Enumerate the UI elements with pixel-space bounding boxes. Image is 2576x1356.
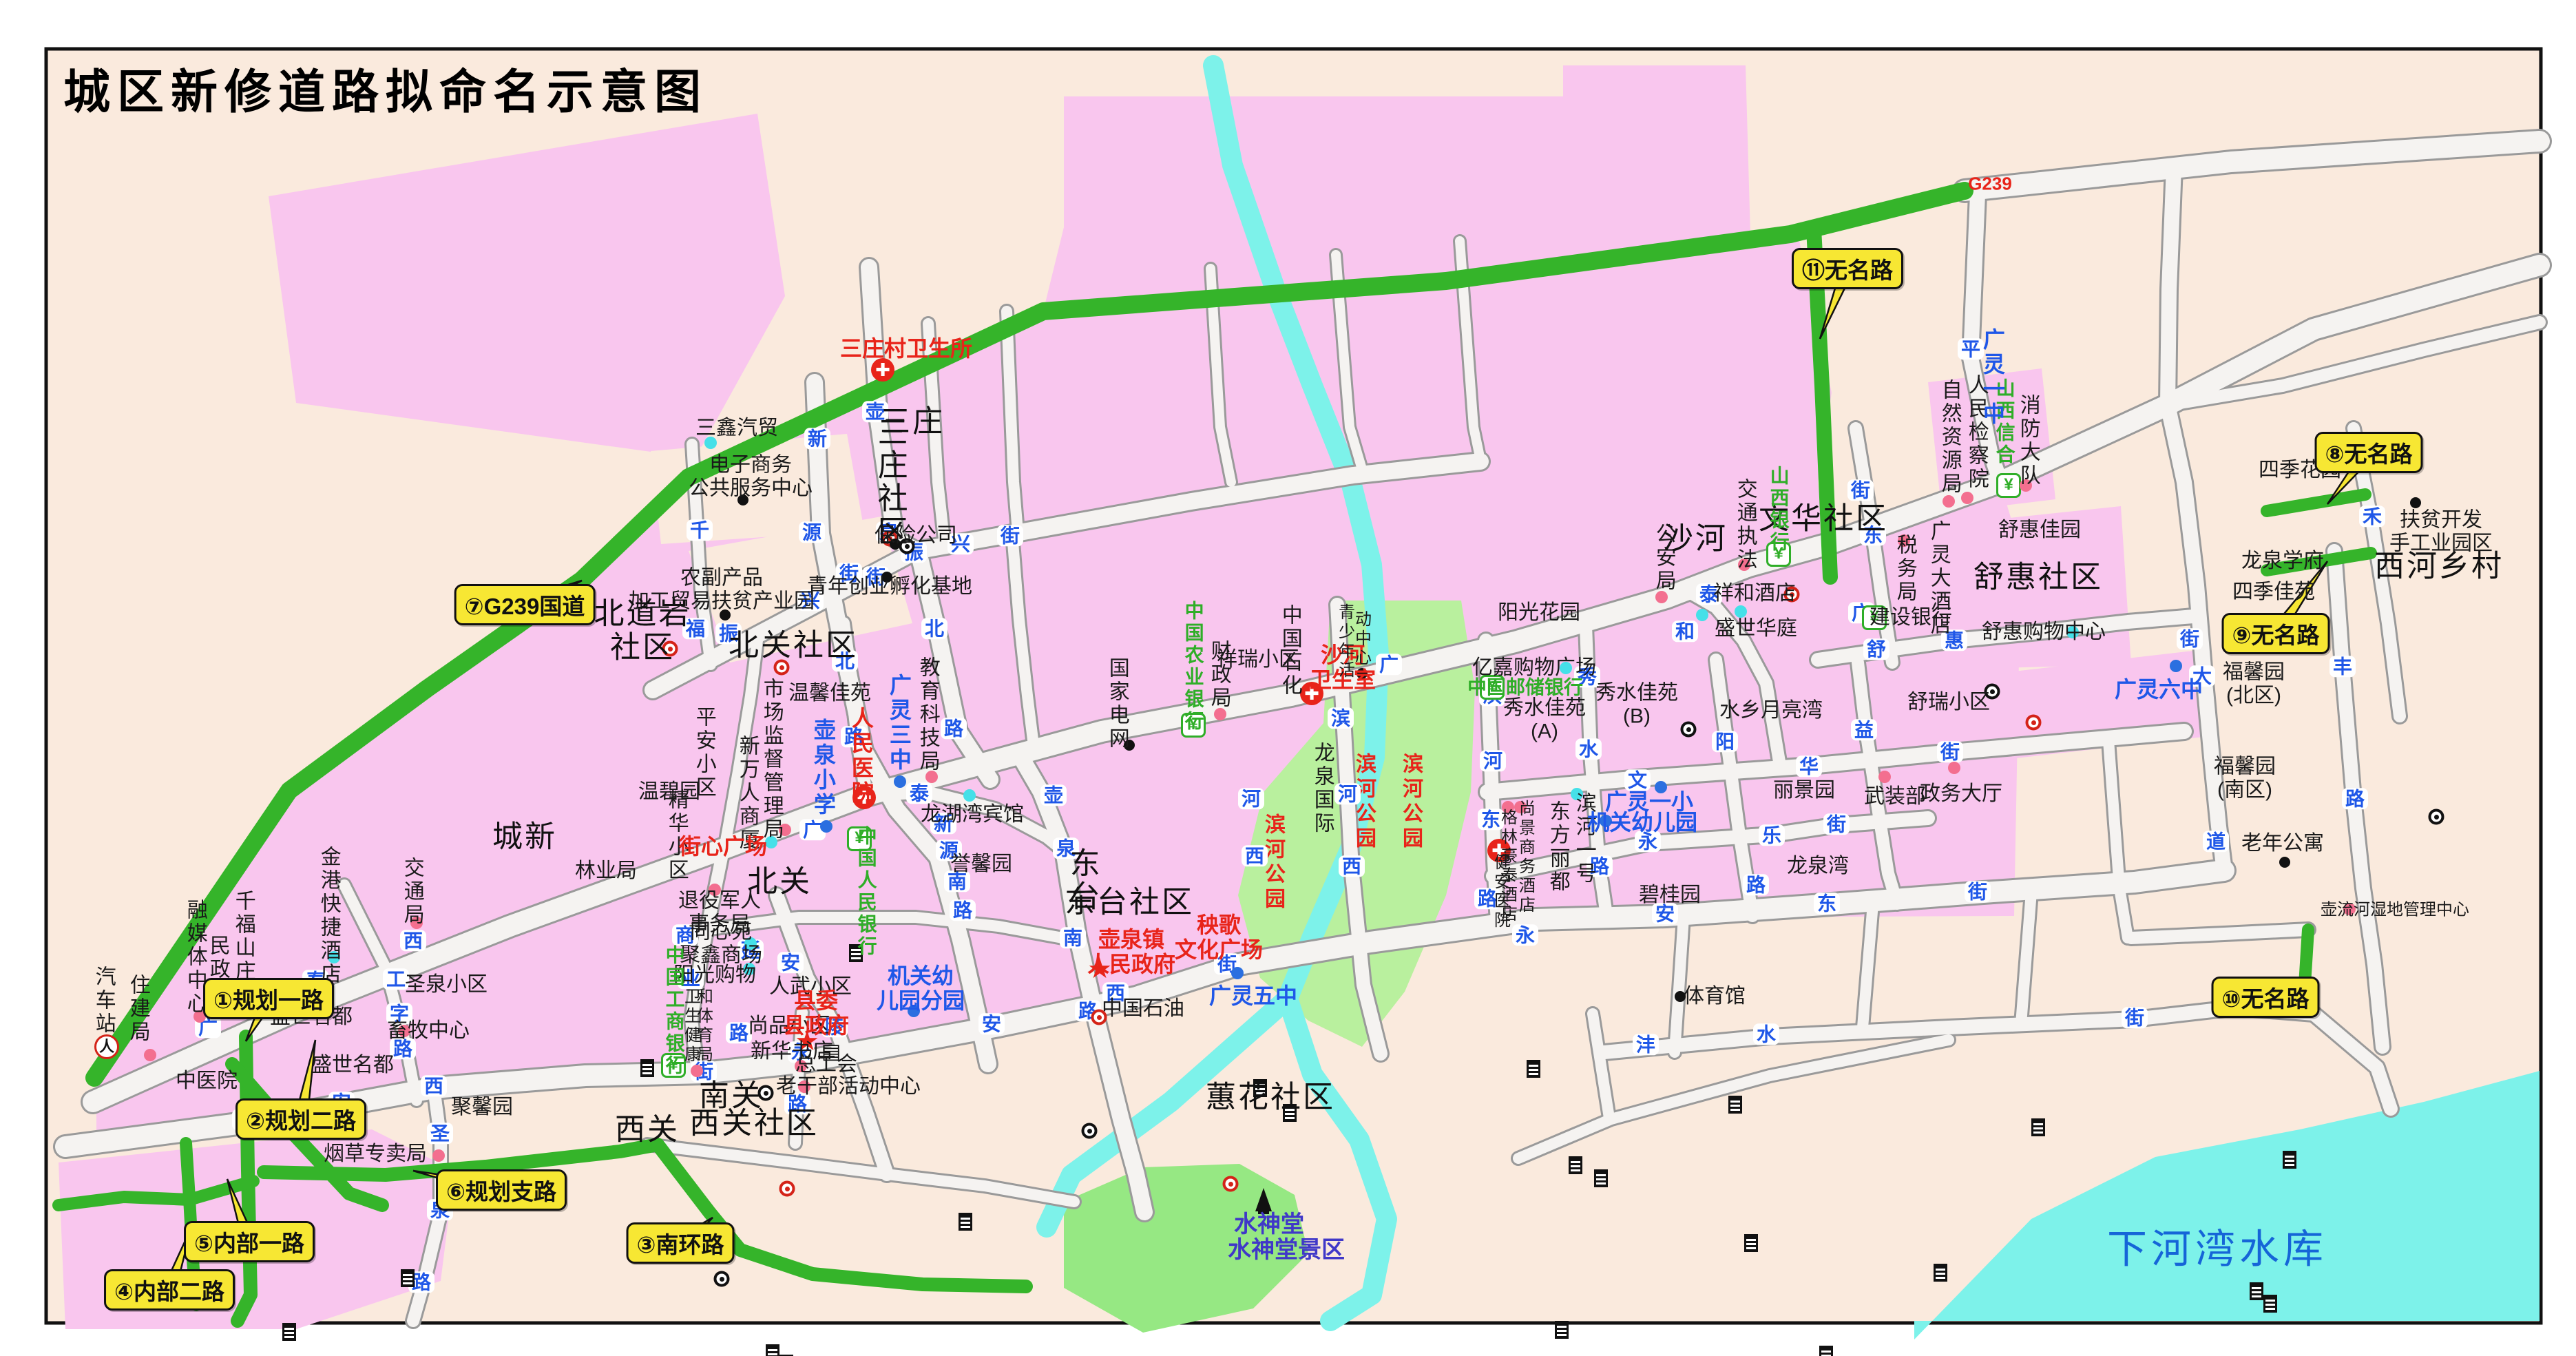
pink-icon bbox=[1878, 771, 1891, 783]
road-badge: ①规划一路 bbox=[203, 978, 334, 1019]
bldg-icon bbox=[282, 1323, 296, 1341]
road-name-capsule: 街 bbox=[2122, 1007, 2148, 1028]
cross-icon bbox=[852, 786, 876, 809]
road-name-capsule: 路 bbox=[841, 726, 867, 747]
road-name-capsule: 壶 bbox=[1040, 784, 1067, 806]
road-badge: ⑩无名路 bbox=[2212, 977, 2320, 1018]
pink-icon bbox=[1898, 534, 1910, 547]
ring-red-icon bbox=[2026, 715, 2042, 731]
ring-blk-icon bbox=[1082, 1123, 1098, 1139]
road-name-capsule: 兴 bbox=[947, 533, 974, 554]
ring-blk-icon bbox=[1681, 722, 1697, 738]
cyan-icon bbox=[765, 836, 777, 848]
road-name-capsule: 壶 bbox=[862, 401, 888, 422]
black-icon bbox=[1675, 991, 1686, 1002]
road-name-capsule: 水 bbox=[1575, 738, 1602, 760]
bank-icon bbox=[1862, 605, 1887, 630]
cyan-icon bbox=[704, 437, 717, 449]
road-name-capsule: 南 bbox=[944, 870, 970, 892]
pink-icon bbox=[2020, 479, 2032, 492]
black-icon bbox=[2410, 497, 2421, 508]
cyan-icon bbox=[963, 789, 976, 802]
pink-icon bbox=[709, 884, 721, 896]
road-name-capsule: 东 bbox=[1478, 809, 1504, 830]
road-name-capsule: 禾 bbox=[2359, 505, 2385, 527]
road-badge: ②规划二路 bbox=[235, 1098, 366, 1140]
bldg-icon bbox=[1555, 1321, 1569, 1339]
road-badge: ⑨无名路 bbox=[2222, 613, 2330, 654]
pink-icon bbox=[432, 1149, 445, 1162]
ring-red-icon bbox=[774, 660, 790, 676]
bus-icon bbox=[94, 1034, 119, 1059]
pink-icon bbox=[398, 1025, 410, 1037]
ring-blk-icon bbox=[899, 539, 915, 554]
road-name-capsule: 广 bbox=[1376, 654, 1402, 675]
road-name-capsule: 路 bbox=[941, 718, 967, 739]
road-name-capsule: 北 bbox=[921, 618, 947, 639]
road-name-capsule: 西 bbox=[1339, 855, 1365, 877]
road-name-capsule: 路 bbox=[950, 899, 976, 921]
pink-icon bbox=[1738, 559, 1750, 571]
road-name-capsule: 永 bbox=[1635, 831, 1661, 852]
black-icon bbox=[2279, 857, 2290, 868]
road-badge: ⑦G239国道 bbox=[454, 584, 596, 625]
road-name-capsule: 陵 bbox=[821, 1016, 848, 1037]
road-name-capsule: 泉 bbox=[1053, 837, 1079, 859]
road-name-capsule: 圣 bbox=[427, 1123, 453, 1144]
road-name-capsule: 河 bbox=[1334, 783, 1361, 804]
road-name-capsule: 泰 bbox=[1696, 583, 1722, 605]
cross-icon bbox=[871, 358, 894, 382]
road-name-capsule: 秀 bbox=[1574, 666, 1600, 687]
pink-icon bbox=[1961, 492, 1973, 504]
ring-red-icon bbox=[1091, 1010, 1107, 1025]
bank-icon bbox=[1181, 713, 1206, 738]
bldg-icon bbox=[2263, 1295, 2277, 1313]
cyan-icon bbox=[744, 937, 757, 950]
blue-icon bbox=[894, 775, 906, 788]
book-icon bbox=[821, 1040, 841, 1064]
pink-icon bbox=[691, 1065, 703, 1077]
road-name-capsule: 街 bbox=[1965, 881, 1991, 902]
star-icon bbox=[1087, 959, 1112, 979]
bank-icon bbox=[1480, 675, 1505, 700]
bldg-icon bbox=[1283, 1104, 1297, 1122]
ring-blk-icon bbox=[1985, 684, 2000, 700]
road-name-capsule: 路 bbox=[784, 1093, 810, 1114]
road-name-capsule: 街 bbox=[1847, 479, 1874, 501]
road-badge: ④内部二路 bbox=[104, 1269, 235, 1311]
blue-icon bbox=[1600, 815, 1612, 827]
cyan-icon bbox=[2066, 626, 2079, 638]
blue-icon bbox=[1231, 967, 1244, 979]
pink-icon bbox=[1948, 762, 1960, 774]
bldg-icon bbox=[1728, 1096, 1742, 1114]
bldg-icon bbox=[1744, 1234, 1758, 1252]
black-icon bbox=[737, 494, 748, 505]
road-name-capsule: 西 bbox=[1102, 982, 1129, 1003]
cyan-icon bbox=[1735, 605, 1747, 618]
road-name-capsule: 大 bbox=[2189, 665, 2215, 687]
road-name-capsule: 河 bbox=[1238, 788, 1264, 809]
road-name-capsule: 惠 bbox=[1941, 629, 1967, 651]
bldg-icon bbox=[2283, 1151, 2296, 1169]
road-name-capsule: 文 bbox=[1624, 769, 1651, 791]
road-name-capsule: 新 bbox=[804, 428, 830, 449]
pink-icon bbox=[144, 1049, 156, 1061]
pink-icon bbox=[925, 771, 938, 783]
black-icon bbox=[890, 539, 901, 550]
pink-icon bbox=[2343, 903, 2356, 915]
bldg-icon bbox=[959, 1213, 972, 1231]
road-name-capsule: 东 bbox=[1860, 524, 1886, 545]
road-name-capsule: 舒 bbox=[1863, 638, 1889, 660]
bldg-icon bbox=[1594, 1169, 1608, 1187]
bldg-icon bbox=[2031, 1118, 2045, 1136]
pink-icon bbox=[1502, 801, 1514, 813]
bank-icon bbox=[1766, 542, 1791, 567]
ring-red-icon bbox=[1784, 587, 1800, 603]
ring-blk-icon bbox=[714, 1271, 730, 1287]
cross-icon bbox=[1300, 682, 1323, 705]
bank-icon bbox=[661, 1053, 686, 1078]
road-name-capsule: 丰 bbox=[2329, 656, 2356, 677]
ring-red-icon bbox=[1223, 1176, 1239, 1192]
road-name-capsule: 平 bbox=[1958, 338, 1984, 359]
blue-icon bbox=[2170, 660, 2182, 672]
bldg-icon bbox=[1253, 1079, 1267, 1097]
road-name-capsule: 滨 bbox=[1328, 707, 1354, 729]
road-name-capsule: 商 bbox=[672, 924, 698, 946]
bldg-icon bbox=[766, 1344, 779, 1356]
road-name-capsule: 街 bbox=[836, 563, 862, 584]
ring-red-icon bbox=[662, 641, 678, 657]
road-name-capsule: 泰 bbox=[906, 782, 932, 804]
road-name-capsule: 益 bbox=[1851, 719, 1877, 740]
road-name-capsule: 源 bbox=[936, 839, 962, 861]
blue-icon bbox=[1655, 781, 1667, 793]
road-name-capsule: 街 bbox=[1823, 813, 1850, 835]
road-name-capsule: 兴 bbox=[797, 590, 824, 611]
black-icon bbox=[1357, 668, 1368, 679]
road-name-capsule: 西 bbox=[400, 930, 426, 951]
pink-icon bbox=[779, 824, 791, 836]
map-root: 城区新修道路拟命名示意图 G239三庄村卫生所三庄三庄社区三鑫汽贸电子商务 公共… bbox=[0, 0, 2576, 1356]
cyan-icon bbox=[1571, 788, 1583, 800]
black-icon bbox=[881, 572, 892, 583]
bank-icon bbox=[1996, 473, 2021, 498]
map-label: 滨河公园 bbox=[1395, 753, 1425, 852]
road-name-capsule: 路 bbox=[2342, 788, 2368, 809]
road-name-capsule: 新 bbox=[930, 813, 956, 834]
road-name-capsule: 沣 bbox=[1633, 1034, 1659, 1055]
map-screenshot: 城区新修道路拟命名示意图 G239三庄村卫生所三庄三庄社区三鑫汽贸电子商务 公共… bbox=[0, 0, 2576, 1356]
cyan-icon bbox=[328, 951, 340, 963]
pink-icon bbox=[798, 1081, 810, 1093]
pink-icon bbox=[1655, 591, 1668, 603]
road-name-capsule: 路 bbox=[1743, 874, 1769, 895]
road-name-capsule: 业 bbox=[678, 968, 704, 989]
road-name-capsule: 乐 bbox=[1759, 824, 1785, 846]
road-name-capsule: 千 bbox=[687, 519, 713, 541]
bldg-icon bbox=[849, 944, 863, 962]
road-name-capsule: 北 bbox=[832, 650, 858, 671]
bldg-icon bbox=[1819, 1346, 1833, 1356]
black-icon bbox=[720, 609, 731, 620]
pink-icon bbox=[1943, 495, 1955, 508]
star-icon bbox=[795, 1031, 819, 1052]
cyan-icon bbox=[1696, 609, 1708, 621]
bank-icon bbox=[847, 826, 872, 851]
ring-blk-icon bbox=[2429, 809, 2444, 825]
road-name-capsule: 福 bbox=[682, 618, 709, 639]
road-badge: ⑤内部一路 bbox=[184, 1221, 315, 1262]
road-badge: ⑪无名路 bbox=[1792, 248, 1903, 289]
bldg-icon bbox=[1527, 1060, 1540, 1078]
bldg-icon bbox=[2250, 1282, 2263, 1300]
ring-blk-icon bbox=[758, 1085, 774, 1101]
bldg-icon bbox=[1934, 1264, 1947, 1282]
blue-icon bbox=[908, 1005, 920, 1017]
road-name-capsule: 阳 bbox=[1712, 731, 1738, 752]
road-name-capsule: 源 bbox=[799, 521, 825, 543]
road bbox=[2168, 167, 2174, 405]
road-name-capsule: 西 bbox=[1242, 845, 1268, 866]
road-name-capsule: 安 bbox=[777, 952, 804, 973]
road-name-capsule: 河 bbox=[1480, 750, 1506, 771]
road-badge: ⑧无名路 bbox=[2315, 432, 2423, 473]
road-name-capsule: 路 bbox=[726, 1022, 752, 1043]
road-name-capsule: 街 bbox=[2177, 628, 2203, 649]
road bbox=[2131, 930, 2308, 938]
road-name-capsule: 路 bbox=[1474, 888, 1500, 909]
road-name-capsule: 街 bbox=[997, 525, 1023, 546]
road-name-capsule: 华 bbox=[1796, 755, 1822, 777]
blue-icon bbox=[820, 820, 833, 833]
pink-icon bbox=[795, 1060, 807, 1072]
road-name-capsule: 水 bbox=[1753, 1023, 1779, 1045]
pink-icon bbox=[1514, 801, 1527, 813]
road-badge: ⑥规划支路 bbox=[436, 1169, 567, 1211]
road-name-capsule: 街 bbox=[1937, 741, 1963, 762]
ring-red-icon bbox=[779, 1181, 795, 1197]
black-icon bbox=[1124, 740, 1135, 751]
road-name-capsule: 路 bbox=[1587, 855, 1613, 877]
road-badge: ③南环路 bbox=[627, 1222, 735, 1264]
road-name-capsule: 工 bbox=[383, 968, 409, 990]
road-name-capsule: 和 bbox=[1672, 620, 1698, 642]
road-name-capsule: 永 bbox=[1512, 924, 1538, 946]
pink-icon bbox=[410, 917, 423, 929]
road-name-capsule: 道 bbox=[2203, 831, 2229, 852]
pink-icon bbox=[1214, 708, 1226, 720]
road-name-capsule: 振 bbox=[715, 623, 742, 644]
bldg-icon bbox=[640, 1059, 654, 1077]
map-title: 城区新修道路拟命名示意图 bbox=[63, 54, 708, 122]
bldg-icon bbox=[401, 1269, 415, 1287]
road-name-capsule: 安 bbox=[978, 1013, 1005, 1034]
cyan-icon bbox=[743, 963, 755, 975]
road-name-capsule: 路 bbox=[390, 1038, 416, 1059]
cross-icon bbox=[1487, 839, 1511, 862]
road-name-capsule: 字 bbox=[386, 1003, 412, 1024]
cyan-icon bbox=[1560, 662, 1572, 674]
road-name-capsule: 西 bbox=[421, 1075, 447, 1096]
road-name-capsule: 东 bbox=[1814, 893, 1840, 914]
bldg-icon bbox=[1569, 1156, 1582, 1174]
road-name-capsule: 南 bbox=[1060, 927, 1086, 948]
pagoda-icon bbox=[1255, 1188, 1272, 1211]
road-name-capsule: 安 bbox=[1652, 903, 1678, 924]
